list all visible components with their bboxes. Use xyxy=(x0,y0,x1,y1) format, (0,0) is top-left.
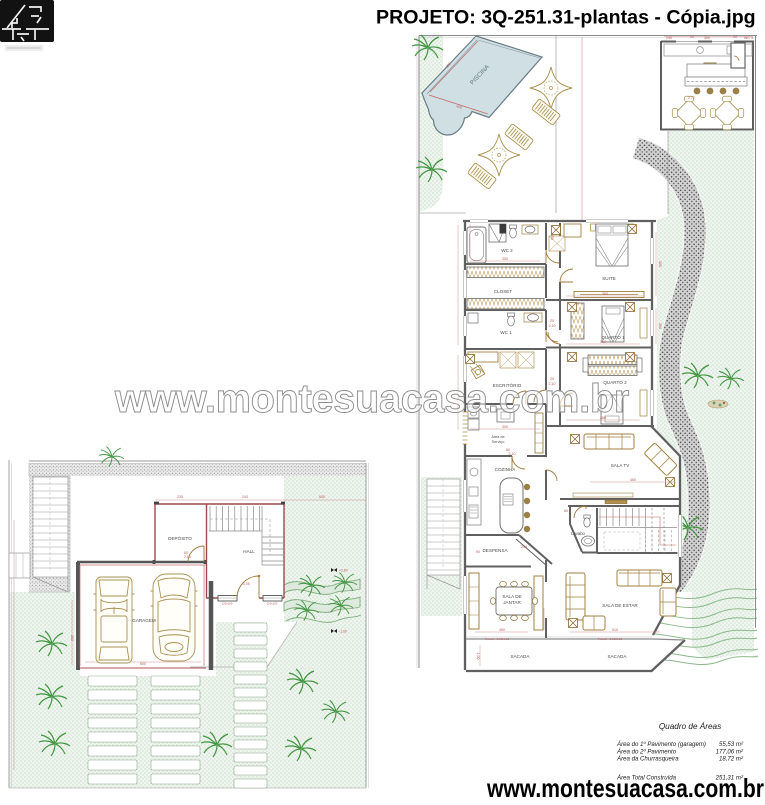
svg-text:SACADA: SACADA xyxy=(608,654,628,659)
svg-text:90: 90 xyxy=(733,35,737,39)
svg-text:600: 600 xyxy=(140,662,146,666)
svg-text:90: 90 xyxy=(476,550,480,554)
svg-text:CLOSET: CLOSET xyxy=(494,289,513,294)
svg-text:HALL: HALL xyxy=(243,549,255,554)
svg-text:2,70: 2,70 xyxy=(688,96,695,100)
svg-text:150: 150 xyxy=(550,234,554,240)
svg-text:450: 450 xyxy=(499,628,505,632)
svg-text:SALA TV: SALA TV xyxy=(611,463,630,468)
svg-text:Serviço: Serviço xyxy=(492,440,505,444)
svg-text:120x100: 120x100 xyxy=(267,602,278,606)
svg-text:DEPÓSITO: DEPÓSITO xyxy=(168,535,192,541)
svg-text:360: 360 xyxy=(600,340,606,344)
svg-text:JANTAR: JANTAR xyxy=(503,600,521,605)
svg-text:SUITE: SUITE xyxy=(602,276,616,281)
svg-text:55,53 m²: 55,53 m² xyxy=(719,741,744,748)
svg-text:2,10: 2,10 xyxy=(549,324,556,328)
svg-text:300: 300 xyxy=(70,635,74,641)
svg-text:18,72 m²: 18,72 m² xyxy=(719,756,744,763)
svg-text:Quadro de Áreas: Quadro de Áreas xyxy=(659,721,721,731)
svg-text:Área do 2º Pavimento: Área do 2º Pavimento xyxy=(616,749,677,756)
svg-text:Lavabo: Lavabo xyxy=(571,531,585,536)
svg-text:510: 510 xyxy=(612,628,618,632)
svg-text:360: 360 xyxy=(602,292,608,296)
svg-text:1,00: 1,00 xyxy=(476,653,480,660)
svg-text:SALA DE ESTAR: SALA DE ESTAR xyxy=(602,603,638,608)
svg-text:600: 600 xyxy=(319,495,325,499)
svg-text:244: 244 xyxy=(521,545,527,549)
svg-text:Área de: Área de xyxy=(491,435,504,439)
svg-text:-1,00: -1,00 xyxy=(339,630,347,634)
svg-text:120x100: 120x100 xyxy=(222,602,233,606)
svg-text:300: 300 xyxy=(658,323,662,329)
svg-text:PROJETO: 3Q-251.31-plantas - C: PROJETO: 3Q-251.31-plantas - Cópia.jpg xyxy=(376,7,756,29)
svg-text:DESPENSA: DESPENSA xyxy=(482,548,508,553)
svg-text:1,05: 1,05 xyxy=(243,582,250,586)
svg-text:WC 2: WC 2 xyxy=(501,248,513,253)
svg-text:Área da Churrasqueira: Área da Churrasqueira xyxy=(616,756,679,763)
svg-text:SALA DE: SALA DE xyxy=(502,594,521,599)
svg-text:177,06 m²: 177,06 m² xyxy=(716,749,744,756)
svg-text:GARAGEM: GARAGEM xyxy=(132,618,156,623)
svg-text:Área do 1º Pavimento (garagem): Área do 1º Pavimento (garagem) xyxy=(616,741,706,748)
svg-text:230: 230 xyxy=(177,495,183,499)
svg-text:300: 300 xyxy=(502,425,508,429)
svg-text:COZINHA: COZINHA xyxy=(495,467,517,472)
svg-text:+2,80: +2,80 xyxy=(339,569,348,573)
svg-text:SACADA: SACADA xyxy=(511,654,531,659)
svg-text:350: 350 xyxy=(502,257,508,261)
svg-text:WC 1: WC 1 xyxy=(500,330,512,335)
svg-text:460: 460 xyxy=(630,478,636,482)
svg-text:www.montesuacasa.com.br: www.montesuacasa.com.br xyxy=(114,377,629,421)
svg-text:300: 300 xyxy=(658,261,662,267)
svg-text:90: 90 xyxy=(690,35,694,39)
svg-text:240: 240 xyxy=(242,495,248,499)
svg-text:Peitoril - 0,90/1,10: Peitoril - 0,90/1,10 xyxy=(485,637,510,641)
svg-text:Peitoril - 0,90/1,10: Peitoril - 0,90/1,10 xyxy=(598,637,623,641)
svg-text:20: 20 xyxy=(550,319,554,323)
svg-text:www.montesuacasa.com.br: www.montesuacasa.com.br xyxy=(486,773,764,800)
svg-text:2,10: 2,10 xyxy=(509,452,516,456)
svg-text:80: 80 xyxy=(564,509,568,513)
svg-text:2,10: 2,10 xyxy=(184,555,191,559)
